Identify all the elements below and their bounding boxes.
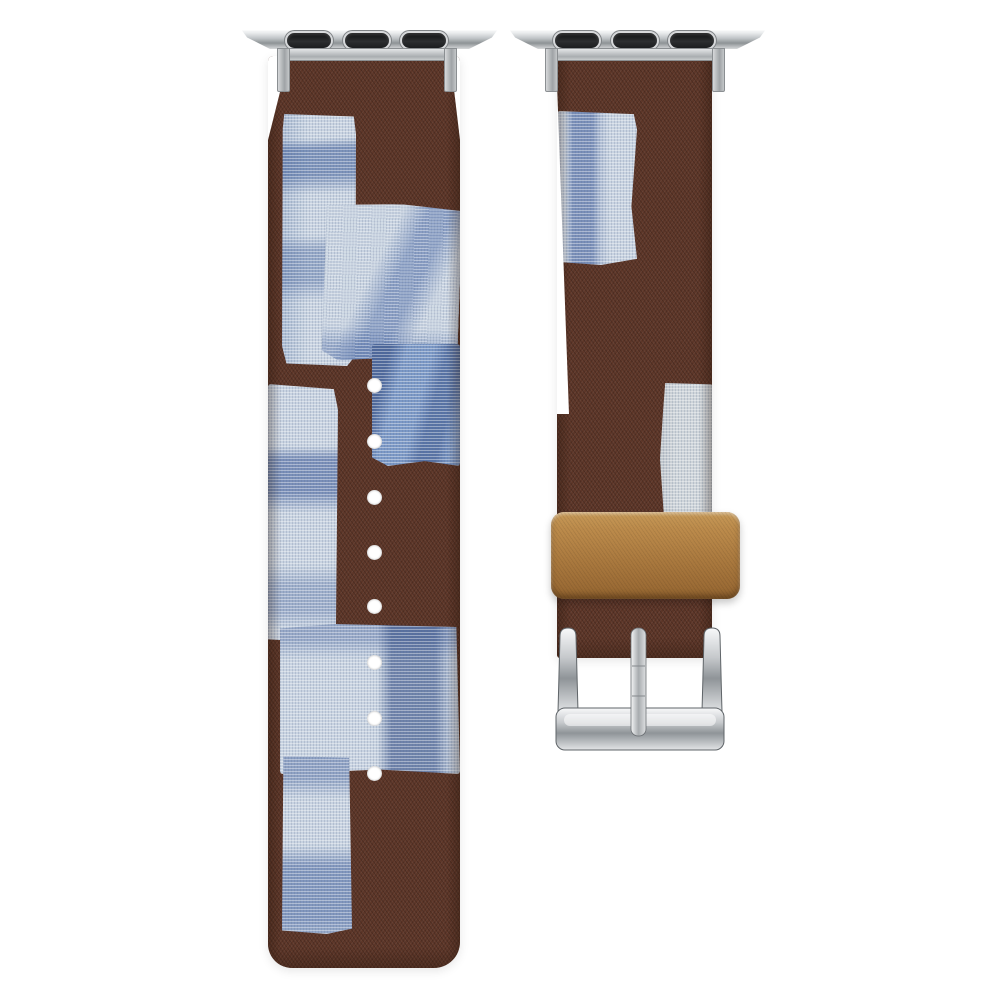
left-strap xyxy=(268,56,460,968)
adapter-slot xyxy=(555,33,599,48)
adapter-slot xyxy=(670,33,714,48)
adapter-bracket-side xyxy=(545,48,558,92)
adapter-bracket-side xyxy=(712,48,725,92)
adjustment-hole xyxy=(367,434,382,449)
buckle xyxy=(550,622,730,758)
adjustment-hole xyxy=(367,545,382,560)
keeper-loop xyxy=(551,512,740,599)
adjustment-hole xyxy=(367,378,382,393)
adapter-bracket-side xyxy=(277,48,290,92)
adjustment-hole xyxy=(367,766,382,781)
adjustment-holes xyxy=(268,56,460,968)
buckle-left-arm xyxy=(558,628,578,712)
product-photo xyxy=(0,0,1000,1000)
indigo-patch xyxy=(557,111,637,265)
adapter-slot xyxy=(402,33,446,48)
watch-adapter-left xyxy=(242,25,497,95)
adapter-bracket-side xyxy=(444,48,457,92)
buckle-right-arm xyxy=(702,628,722,712)
watch-adapter-right xyxy=(510,25,765,95)
adapter-slot xyxy=(287,33,331,48)
adapter-bracket xyxy=(545,48,725,61)
buckle-prong xyxy=(631,628,646,736)
adjustment-hole xyxy=(367,490,382,505)
adapter-bracket xyxy=(277,48,457,61)
adjustment-hole xyxy=(367,711,382,726)
adapter-slot xyxy=(345,33,389,48)
adjustment-hole xyxy=(367,655,382,670)
adjustment-hole xyxy=(367,599,382,614)
grey-patch xyxy=(660,383,712,521)
adapter-slot xyxy=(613,33,657,48)
